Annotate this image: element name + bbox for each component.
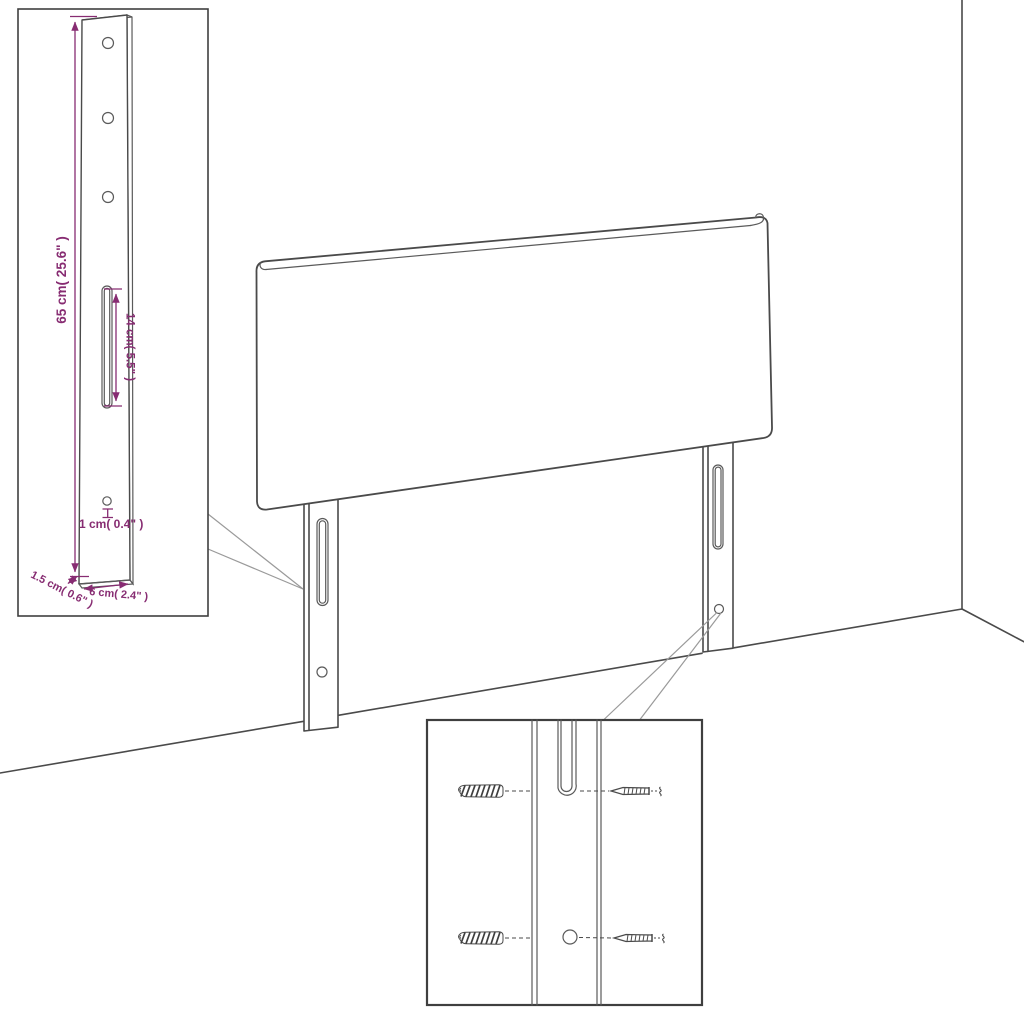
detail-leg xyxy=(79,15,133,588)
headboard xyxy=(256,214,772,731)
floor-line-right xyxy=(962,609,1024,642)
callout-lines xyxy=(208,514,721,720)
leader-left-lower xyxy=(208,549,303,589)
wall-plug-icon-bottom xyxy=(459,932,504,945)
hardware-inset-frame xyxy=(427,720,702,1005)
headboard-panel xyxy=(256,214,772,510)
label-hole-dimension: 1 cm( 0.4" ) xyxy=(79,517,143,531)
leader-right-inner xyxy=(640,613,721,720)
floor-line-left-3 xyxy=(734,609,962,648)
wall-plug-icon-top xyxy=(459,785,504,798)
label-slot-dimension: 14 cm( 5.5" ) xyxy=(124,313,136,381)
diagram-stage: 65 cm( 25.6" ) 14 cm( 5.5" ) 1 cm( 0.4" … xyxy=(0,0,1024,1024)
detail-inset: 65 cm( 25.6" ) 14 cm( 5.5" ) 1 cm( 0.4" … xyxy=(18,9,208,616)
label-height-dimension: 65 cm( 25.6" ) xyxy=(54,236,69,323)
headboard-right-leg xyxy=(703,443,733,653)
hardware-inset xyxy=(427,720,702,1005)
headboard-left-leg xyxy=(304,500,338,731)
leader-right-outer xyxy=(604,613,717,720)
floor-line-left-2 xyxy=(339,653,702,715)
panel-face xyxy=(256,217,772,510)
diagram-canvas: 65 cm( 25.6" ) 14 cm( 5.5" ) 1 cm( 0.4" … xyxy=(0,0,1024,1024)
floor-line-left-1 xyxy=(0,721,303,773)
leader-left-upper xyxy=(208,514,303,589)
